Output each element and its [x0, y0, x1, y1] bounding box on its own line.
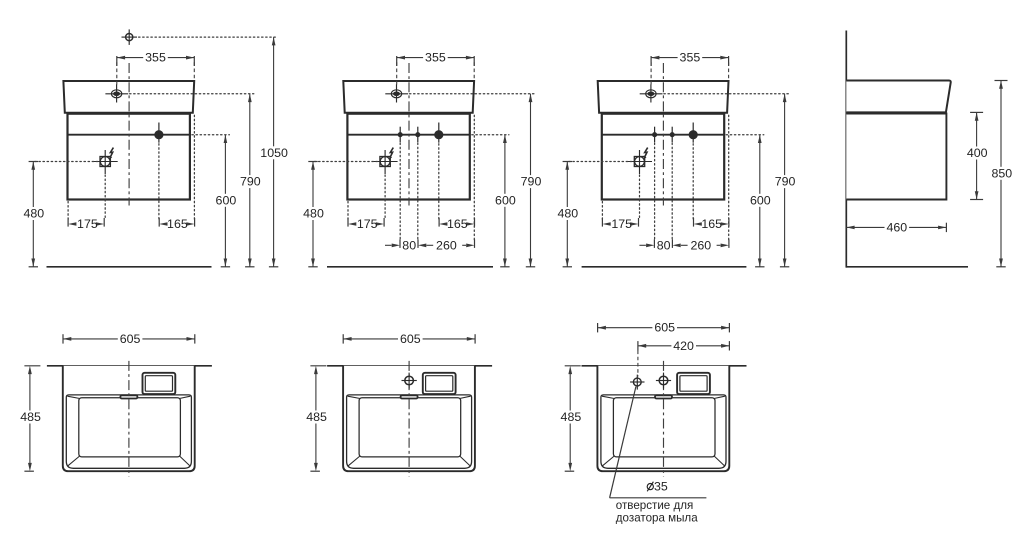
- svg-text:600: 600: [750, 193, 771, 207]
- svg-text:175: 175: [611, 217, 632, 231]
- svg-text:485: 485: [306, 410, 327, 424]
- svg-text:485: 485: [20, 410, 41, 424]
- svg-text:165: 165: [167, 217, 188, 231]
- svg-text:35: 35: [654, 480, 668, 494]
- svg-text:80: 80: [402, 238, 416, 252]
- svg-text:605: 605: [120, 332, 141, 346]
- svg-text:485: 485: [561, 410, 582, 424]
- svg-text:480: 480: [23, 207, 44, 221]
- svg-text:260: 260: [436, 238, 457, 252]
- svg-text:600: 600: [216, 193, 237, 207]
- svg-text:80: 80: [657, 238, 671, 252]
- svg-text:790: 790: [775, 175, 796, 189]
- svg-text:600: 600: [495, 193, 516, 207]
- svg-text:355: 355: [680, 51, 701, 65]
- svg-text:355: 355: [145, 51, 166, 65]
- svg-text:790: 790: [521, 175, 542, 189]
- svg-text:420: 420: [673, 339, 694, 353]
- svg-text:165: 165: [447, 217, 468, 231]
- svg-text:790: 790: [240, 175, 261, 189]
- svg-text:175: 175: [77, 217, 98, 231]
- svg-text:400: 400: [967, 146, 988, 160]
- svg-text:1050: 1050: [260, 146, 288, 160]
- svg-text:605: 605: [654, 321, 675, 335]
- svg-text:355: 355: [425, 51, 446, 65]
- svg-text:480: 480: [303, 207, 324, 221]
- svg-text:605: 605: [400, 332, 421, 346]
- svg-text:850: 850: [991, 166, 1012, 180]
- svg-text:165: 165: [701, 217, 722, 231]
- svg-text:480: 480: [557, 207, 578, 221]
- svg-text:дозатора мыла: дозатора мыла: [616, 512, 698, 525]
- svg-text:175: 175: [357, 217, 378, 231]
- svg-text:отверстие для: отверстие для: [616, 499, 694, 512]
- svg-text:460: 460: [886, 220, 907, 234]
- svg-text:260: 260: [690, 238, 711, 252]
